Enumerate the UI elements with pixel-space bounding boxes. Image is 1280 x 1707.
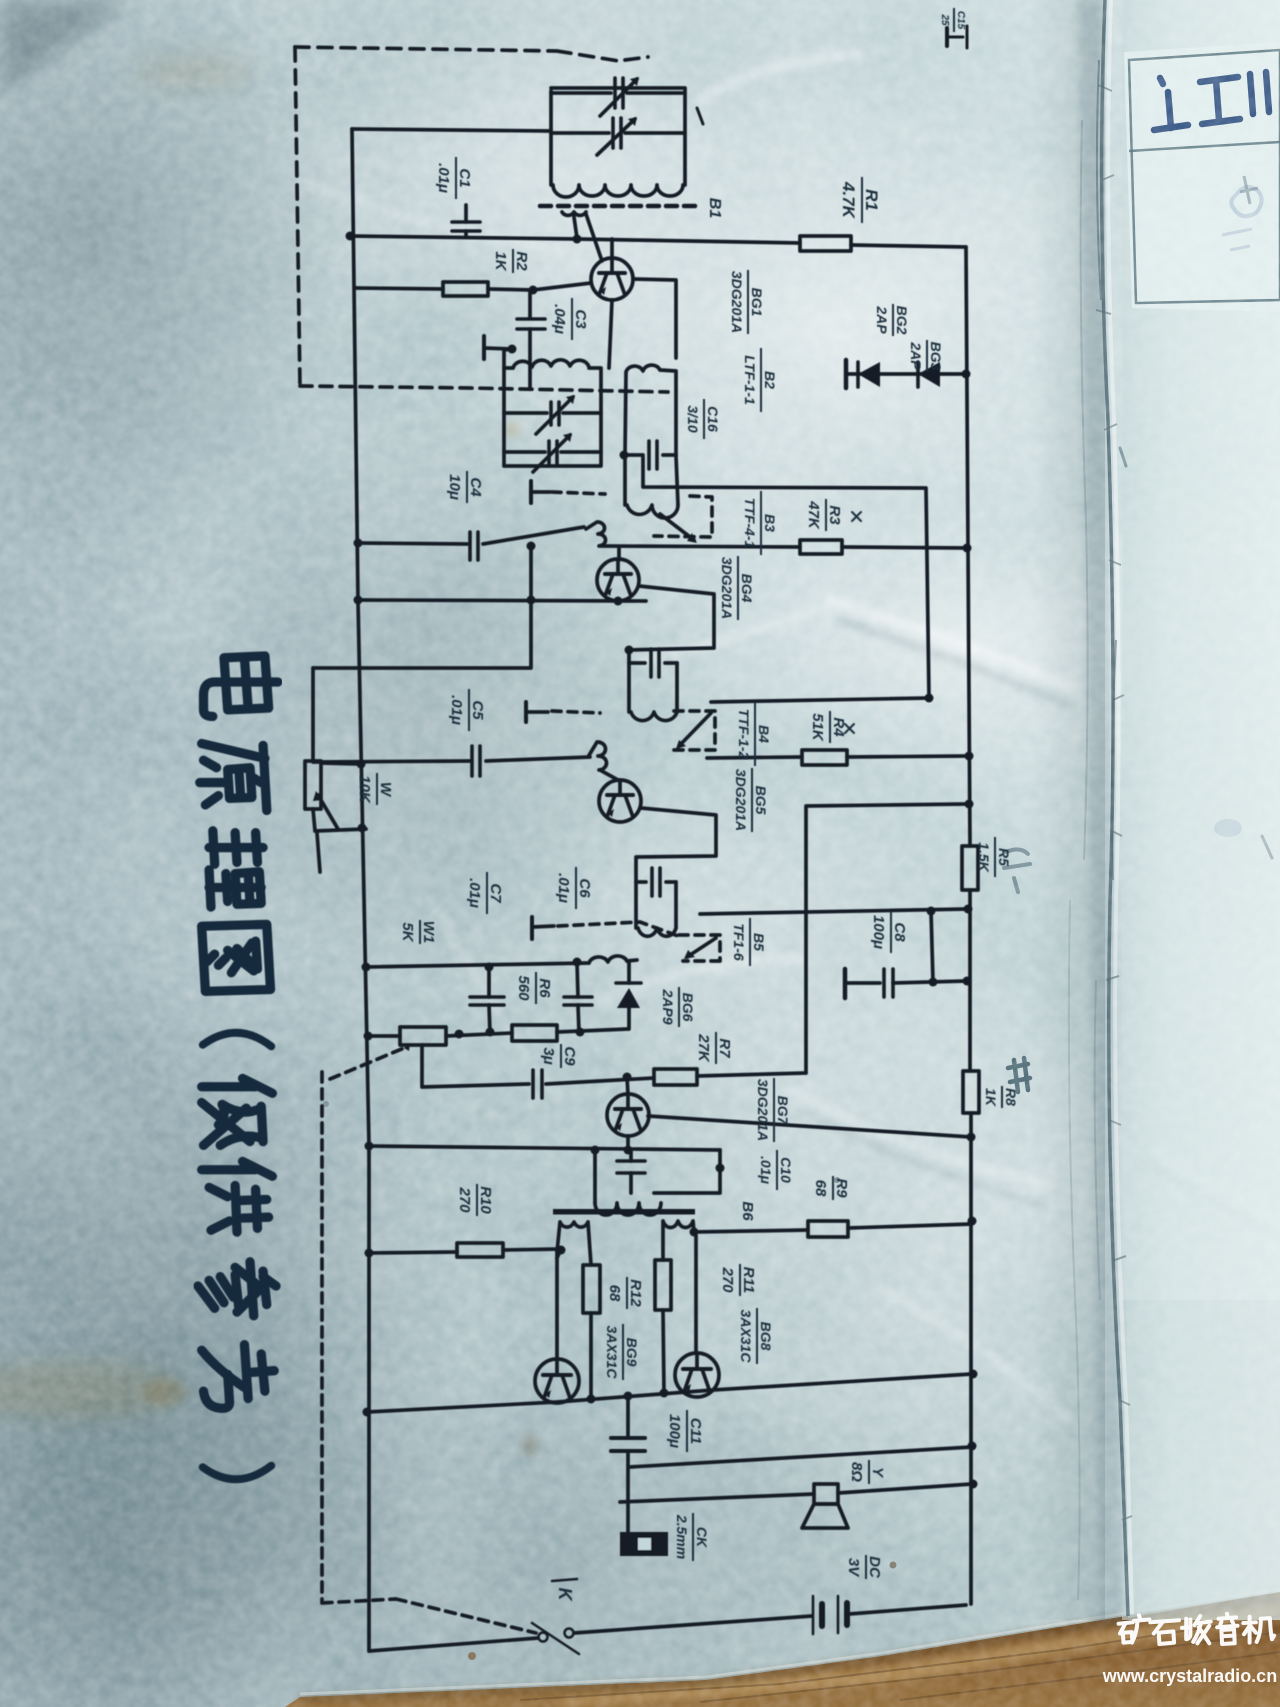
svg-text:BG9: BG9 bbox=[624, 1338, 640, 1367]
svg-text:3DG201A: 3DG201A bbox=[729, 271, 745, 333]
svg-text:2AP9: 2AP9 bbox=[660, 988, 676, 1024]
svg-text:B6: B6 bbox=[739, 1201, 756, 1221]
svg-text:3DG201A: 3DG201A bbox=[733, 769, 749, 831]
svg-text:R10: R10 bbox=[477, 1186, 494, 1214]
svg-text:C6: C6 bbox=[576, 878, 593, 898]
svg-text:BG7: BG7 bbox=[775, 1096, 791, 1126]
svg-text:C5: C5 bbox=[469, 700, 486, 720]
svg-text:C3: C3 bbox=[572, 309, 589, 329]
svg-text:25: 25 bbox=[939, 13, 950, 26]
svg-text:B2: B2 bbox=[762, 371, 778, 389]
svg-text:560: 560 bbox=[515, 975, 532, 1001]
svg-text:BG6: BG6 bbox=[680, 993, 696, 1022]
svg-text:C15: C15 bbox=[955, 11, 966, 30]
svg-text:TTF-4-1: TTF-4-1 bbox=[742, 498, 758, 549]
svg-text:3AX31C: 3AX31C bbox=[604, 1326, 620, 1380]
svg-text:1K: 1K bbox=[983, 1088, 999, 1107]
svg-text:270: 270 bbox=[456, 1186, 473, 1213]
svg-text:K: K bbox=[555, 1588, 575, 1603]
svg-text:R11: R11 bbox=[740, 1267, 757, 1293]
svg-text:R8: R8 bbox=[1003, 1088, 1019, 1106]
svg-text:68: 68 bbox=[812, 1180, 829, 1197]
svg-text:2AP: 2AP bbox=[874, 305, 890, 334]
svg-text:DC: DC bbox=[866, 1556, 883, 1579]
svg-text:BG8: BG8 bbox=[758, 1322, 774, 1351]
svg-text:100μ: 100μ bbox=[870, 915, 887, 949]
svg-text:B3: B3 bbox=[762, 514, 778, 532]
svg-text:1K: 1K bbox=[492, 251, 509, 271]
svg-text:LTF-1-1: LTF-1-1 bbox=[742, 355, 758, 405]
svg-text:B1: B1 bbox=[706, 198, 723, 219]
svg-text:R2: R2 bbox=[513, 251, 530, 271]
svg-text:.01μ: .01μ bbox=[466, 878, 483, 908]
svg-text:W: W bbox=[377, 782, 394, 798]
svg-text:R1: R1 bbox=[862, 189, 881, 211]
svg-text:CK: CK bbox=[694, 1527, 710, 1548]
svg-text:R3: R3 bbox=[826, 505, 843, 525]
svg-text:R4: R4 bbox=[830, 717, 847, 737]
svg-text:B4: B4 bbox=[756, 725, 772, 743]
svg-text:8Ω: 8Ω bbox=[848, 1462, 865, 1482]
svg-text:3AX31C: 3AX31C bbox=[738, 1310, 754, 1364]
svg-text:270: 270 bbox=[719, 1266, 736, 1293]
svg-text:R12: R12 bbox=[627, 1279, 644, 1307]
svg-text:10μ: 10μ bbox=[446, 474, 463, 500]
svg-text:.01μ: .01μ bbox=[758, 1156, 774, 1184]
svg-text:.01μ: .01μ bbox=[555, 873, 572, 903]
svg-text:www.crystalradio.cn: www.crystalradio.cn bbox=[1102, 1666, 1277, 1686]
svg-text:3DG201A: 3DG201A bbox=[755, 1079, 771, 1141]
svg-text:2.5mm: 2.5mm bbox=[674, 1514, 690, 1559]
svg-text:1.5K: 1.5K bbox=[976, 842, 992, 872]
svg-text:2AP: 2AP bbox=[908, 341, 924, 370]
svg-text:C4: C4 bbox=[467, 477, 484, 497]
svg-text:3/10: 3/10 bbox=[685, 405, 701, 432]
svg-text:47K: 47K bbox=[805, 500, 822, 530]
svg-text:TF1-6: TF1-6 bbox=[731, 923, 747, 961]
svg-text:BG2: BG2 bbox=[894, 306, 910, 335]
svg-text:.01μ: .01μ bbox=[435, 163, 452, 193]
svg-text:C9: C9 bbox=[561, 1046, 578, 1066]
svg-text:27K: 27K bbox=[695, 1033, 712, 1063]
svg-text:BG5: BG5 bbox=[753, 786, 769, 815]
svg-text:68: 68 bbox=[606, 1285, 623, 1302]
svg-text:C11: C11 bbox=[687, 1418, 704, 1444]
svg-text:C16: C16 bbox=[705, 406, 721, 432]
svg-text:.04μ: .04μ bbox=[551, 304, 568, 334]
svg-text:C1: C1 bbox=[456, 168, 473, 187]
svg-text:3DG201A: 3DG201A bbox=[719, 557, 735, 619]
svg-text:C8: C8 bbox=[891, 922, 908, 942]
svg-text:R5: R5 bbox=[996, 848, 1012, 866]
svg-text:R9: R9 bbox=[833, 1178, 850, 1198]
svg-text:3V: 3V bbox=[845, 1558, 862, 1578]
svg-text:BG1: BG1 bbox=[749, 288, 765, 317]
svg-text:10K: 10K bbox=[356, 775, 373, 804]
svg-text:R7: R7 bbox=[716, 1038, 733, 1058]
svg-text:51K: 51K bbox=[809, 713, 826, 742]
svg-text:BG4: BG4 bbox=[739, 574, 755, 603]
svg-text:100μ: 100μ bbox=[666, 1414, 683, 1448]
svg-text:3μ: 3μ bbox=[540, 1047, 557, 1064]
svg-text:C10: C10 bbox=[778, 1157, 794, 1183]
svg-text:C7: C7 bbox=[487, 883, 504, 903]
svg-text:.01μ: .01μ bbox=[448, 695, 465, 725]
svg-text:R6: R6 bbox=[536, 978, 553, 998]
svg-text:W1: W1 bbox=[420, 921, 437, 944]
svg-text:TTF-1-2: TTF-1-2 bbox=[736, 709, 752, 760]
svg-text:B5: B5 bbox=[751, 933, 767, 951]
svg-text:4.7K: 4.7K bbox=[839, 181, 858, 220]
svg-text:BG3: BG3 bbox=[928, 342, 944, 371]
svg-text:5K: 5K bbox=[399, 922, 416, 942]
